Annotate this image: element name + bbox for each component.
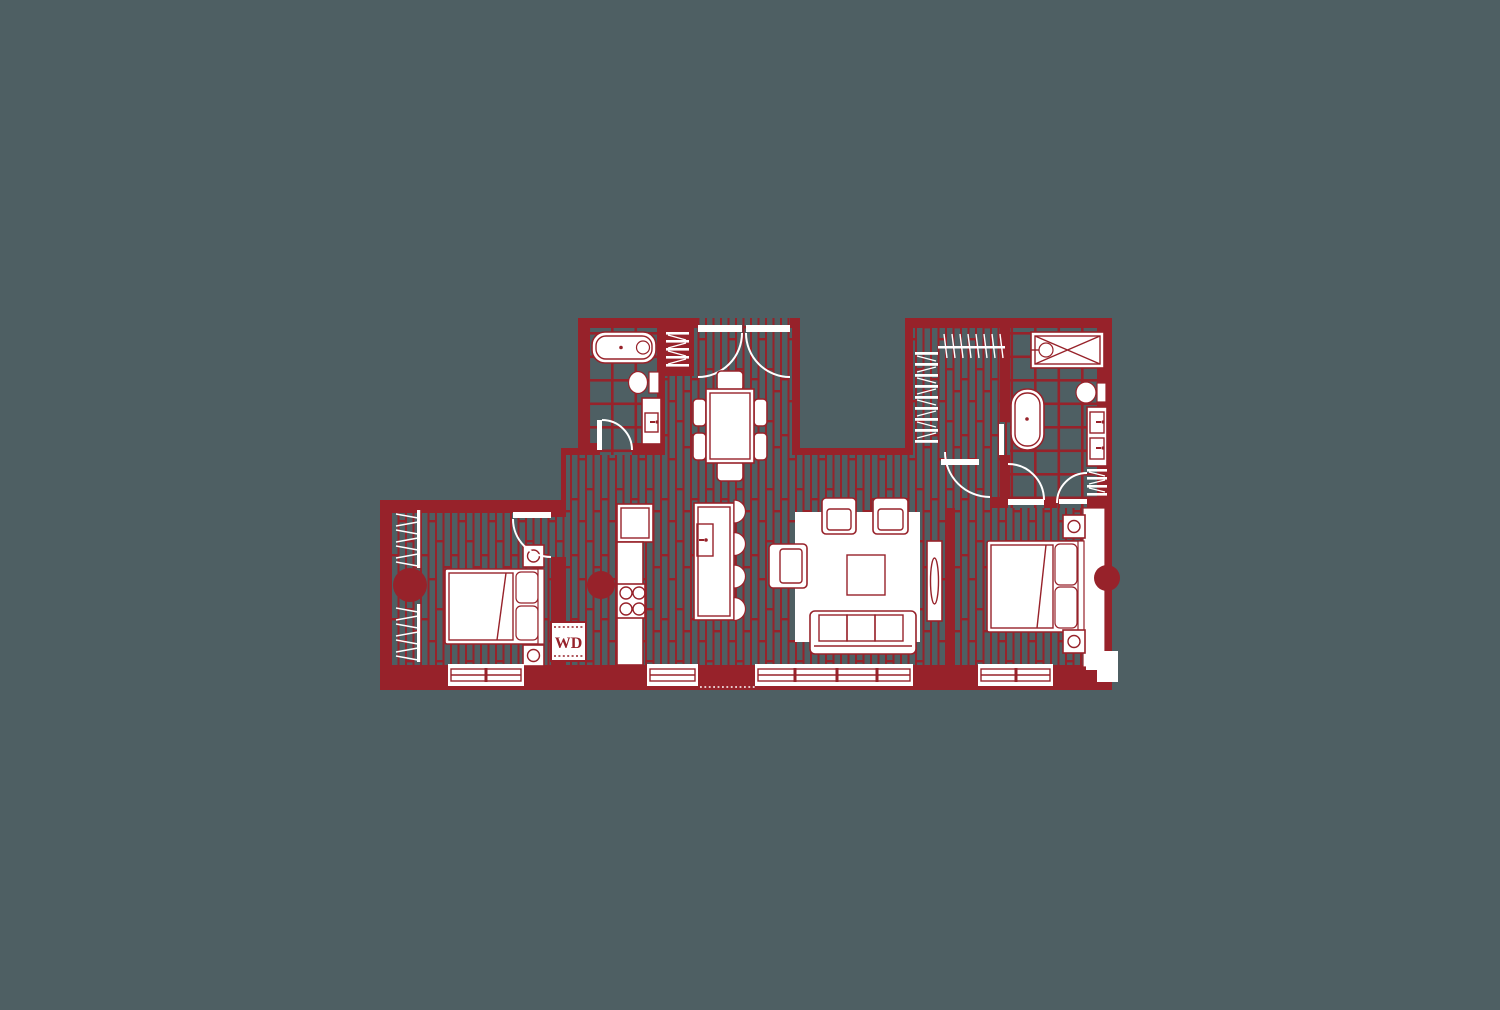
pillow-icon [516, 572, 538, 603]
toilet-icon [629, 372, 648, 394]
closet-hanging-rod-icon [938, 346, 1005, 349]
structural-column-icon [587, 571, 615, 599]
linen-shelf [1087, 485, 1107, 488]
sink-faucet [704, 538, 708, 542]
vanity-faucet-spout [650, 421, 655, 423]
structural-column-icon [393, 568, 427, 602]
dining-chair-icon [717, 461, 743, 481]
window-mullion [1015, 668, 1018, 682]
dining-chair-icon [693, 399, 706, 426]
linen-shelf [1087, 477, 1107, 480]
toilet-tank [649, 372, 659, 393]
closet-shelf [915, 363, 938, 366]
closet-shelf [915, 385, 938, 388]
sink-faucet-spout [699, 539, 704, 541]
vanity-faucet-spout [1096, 421, 1101, 423]
closet-shelf [915, 374, 938, 377]
entry-floor-2 [665, 376, 694, 458]
closet-bath-door-leaf [999, 424, 1004, 455]
bath1-door-opening [600, 443, 632, 455]
sofa-icon [810, 611, 916, 654]
bedroom1-door-opening [551, 517, 566, 557]
toilet-tank [1097, 383, 1106, 402]
corner-notch-2 [1097, 651, 1118, 682]
refrigerator-icon [617, 504, 653, 542]
closet-hanging-rod-icon [417, 604, 420, 662]
closet-hanging-rod-icon [417, 510, 420, 568]
dining-chair-icon [754, 399, 767, 426]
kitchen-island-icon [694, 503, 734, 620]
dining-chair-icon [754, 433, 767, 460]
nightstand-icon [1063, 515, 1085, 538]
window-mullion [485, 668, 488, 682]
entry-door-leaf-left [698, 325, 742, 332]
closet-shelf [915, 440, 938, 443]
closet-shelf [915, 396, 938, 399]
tv-console-icon [927, 541, 942, 621]
floor-plan: WD [0, 0, 1500, 1010]
toilet-icon [1076, 382, 1096, 403]
dining-chair-icon [717, 371, 743, 391]
bedroom1-door-leaf [513, 512, 551, 518]
vanity-faucet [1101, 446, 1104, 449]
bath2-door-leaf [1008, 499, 1044, 505]
nightstand-icon [523, 645, 544, 666]
entry-door-leaf-right [746, 325, 790, 332]
shower-head [1039, 343, 1053, 357]
wd-label: WD [555, 635, 583, 652]
nightstand-icon [1063, 630, 1085, 653]
bathtub-faucet-icon [637, 341, 650, 354]
closet-door-opening [945, 497, 990, 508]
laundry: WD [551, 622, 586, 661]
closet-shelves-icon [915, 352, 938, 355]
closet-shelf [915, 429, 938, 432]
pillow-icon [1055, 544, 1077, 585]
bath1-door-leaf [597, 420, 602, 450]
closet-shelves-icon [666, 332, 689, 335]
headboard [1078, 541, 1084, 632]
linen-shelves-icon [1087, 469, 1107, 472]
dining-table-icon [706, 389, 754, 463]
closet-shelf [666, 364, 689, 367]
linen-shelf [1087, 493, 1107, 496]
tub-drain [1025, 417, 1029, 421]
vanity-faucet [655, 420, 658, 423]
structural-column-icon [1094, 565, 1120, 591]
closet-shelf [915, 418, 938, 421]
headboard [538, 569, 544, 644]
bath2-door2-leaf [1059, 499, 1087, 504]
dining-chair-icon [693, 433, 706, 460]
window-mullion [876, 668, 879, 682]
window-mullion [794, 668, 797, 682]
vanity-faucet [1101, 420, 1104, 423]
closet-shelf [666, 348, 689, 351]
vanity-faucet-spout [1096, 447, 1101, 449]
bathtub-drain [619, 346, 623, 350]
closet-shelf [915, 407, 938, 410]
pillow-icon [516, 606, 538, 640]
floor-plan-canvas: WD [0, 0, 1500, 1010]
window-mullion [836, 668, 839, 682]
pillow-icon [1055, 587, 1077, 628]
